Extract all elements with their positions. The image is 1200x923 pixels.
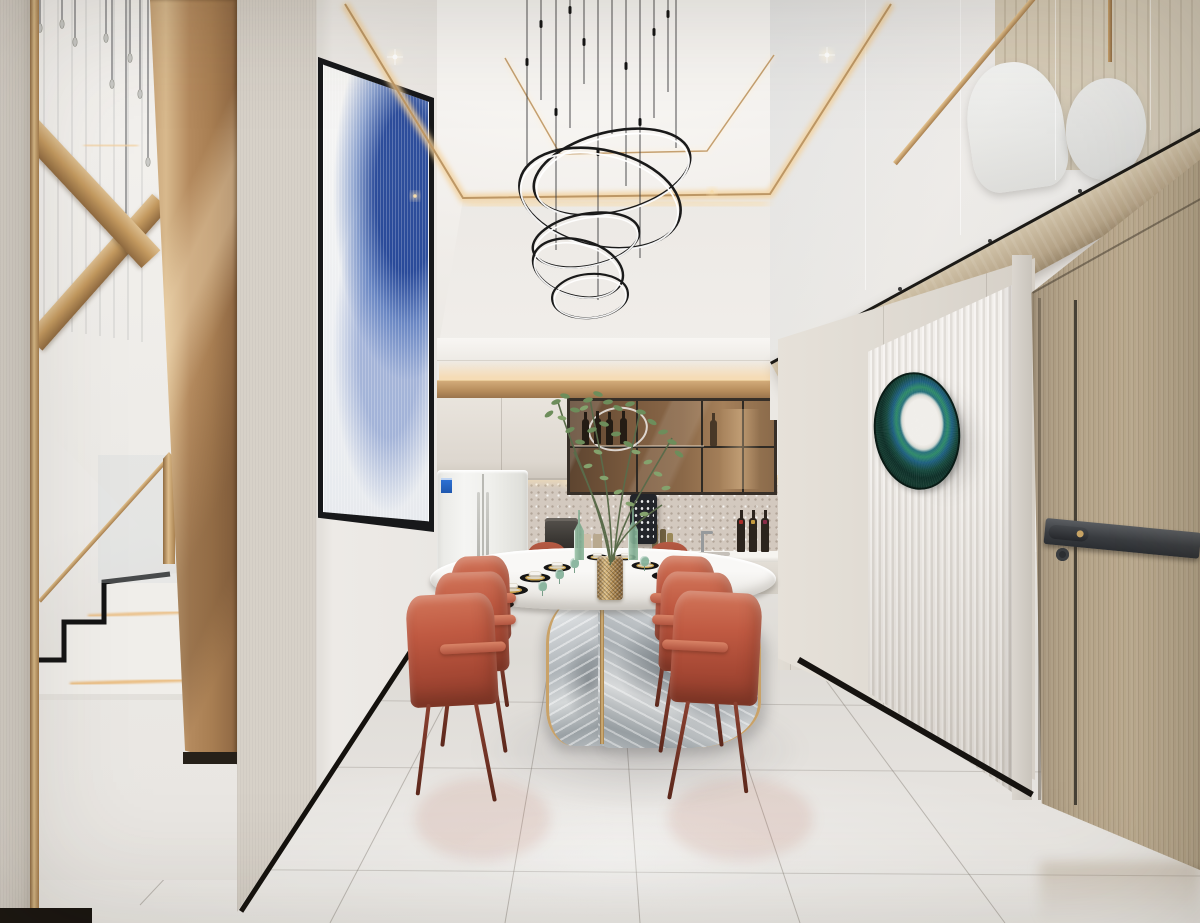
interior-render — [0, 0, 1200, 923]
dining-chair[interactable] — [669, 590, 763, 706]
chair-back — [669, 590, 763, 706]
chandelier-and-ceiling — [0, 0, 1200, 923]
chair-armrest — [662, 639, 728, 652]
table-plant — [544, 390, 685, 565]
dining-chair[interactable] — [405, 592, 499, 708]
ceiling-tray — [345, 4, 891, 206]
chair-back — [405, 592, 499, 708]
chandelier-rings — [509, 114, 699, 321]
